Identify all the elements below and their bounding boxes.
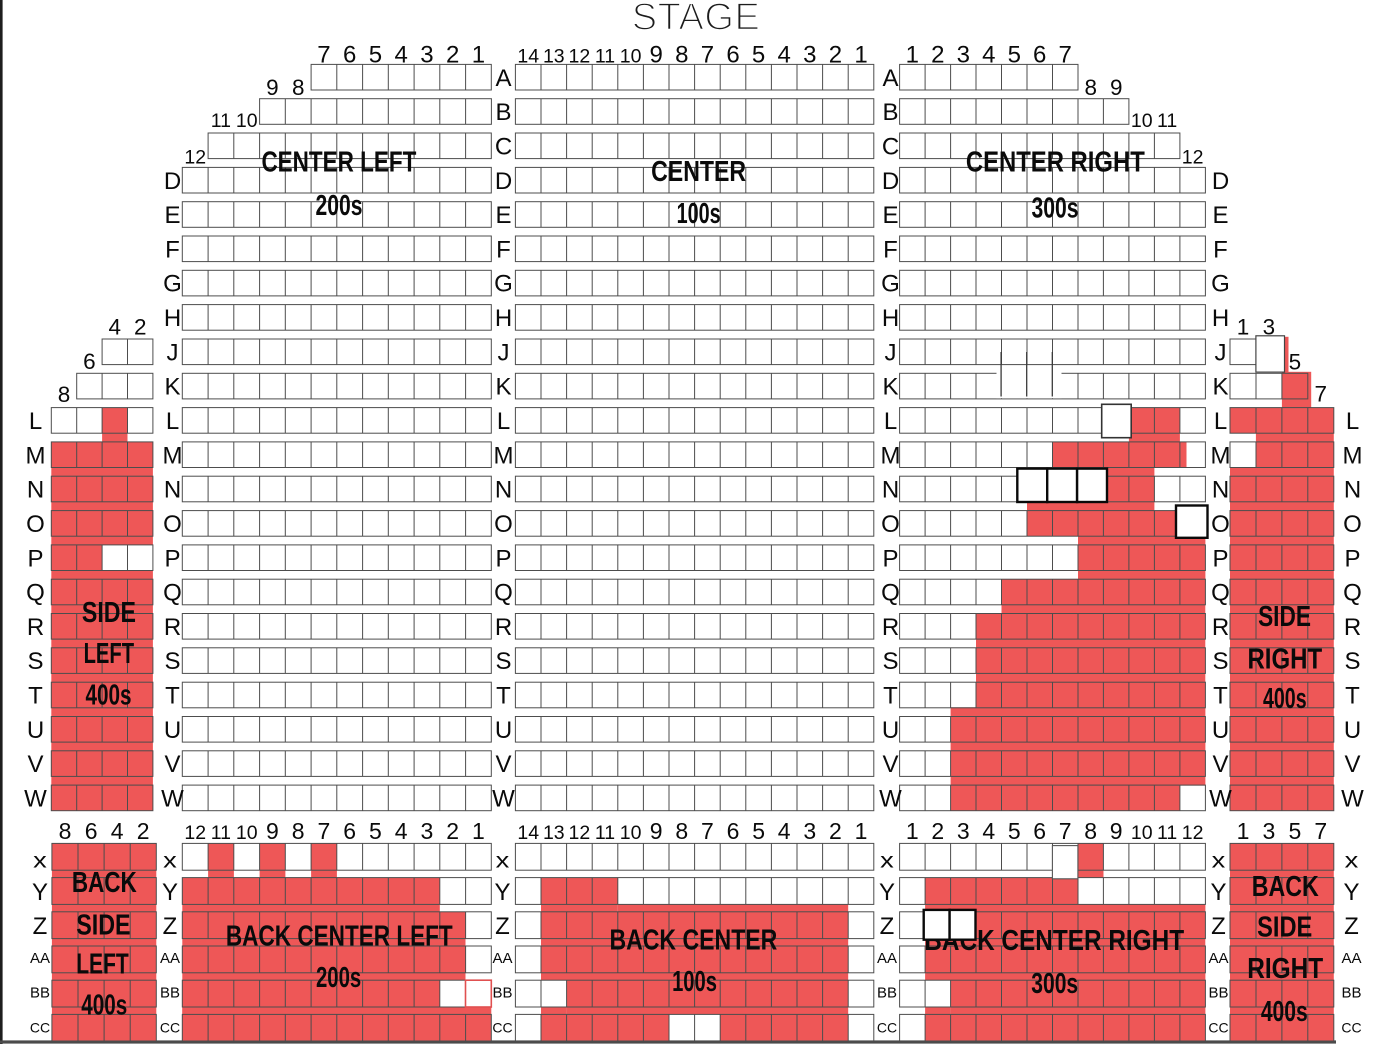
- svg-text:LEFT: LEFT: [76, 948, 129, 980]
- svg-text:CC: CC: [492, 1020, 512, 1036]
- svg-text:J: J: [1215, 339, 1227, 366]
- svg-text:CC: CC: [1208, 1020, 1228, 1036]
- svg-text:2: 2: [829, 818, 842, 844]
- svg-text:14: 14: [517, 46, 539, 68]
- svg-text:12: 12: [184, 822, 206, 844]
- svg-text:4: 4: [982, 818, 995, 844]
- svg-text:V: V: [495, 751, 511, 778]
- svg-text:RIGHT: RIGHT: [1247, 642, 1322, 675]
- svg-text:BB: BB: [30, 984, 50, 1001]
- svg-text:W: W: [161, 786, 184, 813]
- svg-text:BB: BB: [492, 984, 512, 1001]
- svg-text:L: L: [1214, 408, 1227, 435]
- svg-text:x: x: [1212, 849, 1226, 872]
- svg-text:BB: BB: [160, 984, 180, 1001]
- svg-text:x: x: [1345, 849, 1359, 872]
- svg-text:L: L: [1346, 408, 1359, 435]
- svg-text:STAGE: STAGE: [632, 0, 760, 39]
- svg-text:4: 4: [778, 42, 791, 69]
- svg-text:8: 8: [59, 818, 72, 844]
- svg-text:D: D: [882, 168, 899, 195]
- svg-text:D: D: [1212, 168, 1229, 195]
- svg-text:2: 2: [134, 315, 147, 340]
- svg-text:S: S: [27, 648, 43, 675]
- svg-text:300s: 300s: [1032, 192, 1079, 224]
- svg-text:W: W: [492, 786, 515, 813]
- svg-text:8: 8: [292, 818, 305, 844]
- svg-text:200s: 200s: [316, 962, 361, 994]
- svg-text:T: T: [1213, 683, 1228, 710]
- svg-text:SIDE: SIDE: [82, 595, 136, 628]
- svg-text:P: P: [164, 545, 180, 572]
- svg-text:1: 1: [472, 42, 485, 69]
- svg-text:M: M: [163, 442, 183, 469]
- svg-text:O: O: [163, 511, 182, 538]
- svg-text:1: 1: [854, 42, 867, 69]
- svg-text:B: B: [495, 99, 511, 126]
- svg-text:Q: Q: [1211, 580, 1230, 607]
- svg-text:Q: Q: [26, 580, 45, 607]
- svg-text:S: S: [1212, 648, 1228, 675]
- svg-text:K: K: [495, 374, 511, 401]
- svg-text:10: 10: [620, 46, 642, 68]
- svg-text:2: 2: [137, 818, 150, 844]
- svg-text:2: 2: [931, 42, 944, 69]
- svg-text:AA: AA: [877, 950, 897, 967]
- svg-text:4: 4: [982, 42, 995, 69]
- svg-text:4: 4: [109, 315, 122, 340]
- svg-text:3: 3: [803, 42, 816, 69]
- svg-text:Z: Z: [33, 913, 48, 940]
- svg-text:B: B: [882, 99, 898, 126]
- svg-text:T: T: [28, 683, 43, 710]
- svg-text:5: 5: [1289, 350, 1302, 375]
- svg-text:D: D: [495, 168, 512, 195]
- svg-text:11: 11: [1157, 110, 1177, 132]
- svg-text:E: E: [1212, 202, 1228, 229]
- svg-text:Y: Y: [32, 879, 48, 906]
- svg-text:6: 6: [343, 42, 356, 69]
- svg-text:13: 13: [543, 822, 565, 844]
- svg-text:CC: CC: [160, 1020, 180, 1036]
- svg-text:2: 2: [446, 818, 459, 844]
- svg-text:200s: 200s: [316, 190, 363, 222]
- svg-text:RIGHT: RIGHT: [1247, 952, 1324, 984]
- svg-text:V: V: [1212, 751, 1228, 778]
- svg-text:4: 4: [111, 818, 124, 844]
- svg-text:5: 5: [1289, 818, 1302, 844]
- svg-text:T: T: [496, 683, 511, 710]
- svg-text:BACK CENTER: BACK CENTER: [609, 923, 777, 956]
- svg-text:12: 12: [1182, 147, 1204, 169]
- svg-text:F: F: [883, 236, 898, 263]
- svg-text:1: 1: [1237, 818, 1250, 844]
- svg-text:5: 5: [1008, 818, 1021, 844]
- svg-text:H: H: [1212, 305, 1229, 332]
- svg-text:10: 10: [1131, 822, 1153, 844]
- svg-text:400s: 400s: [1263, 683, 1307, 715]
- svg-text:9: 9: [650, 42, 663, 69]
- svg-text:Z: Z: [1211, 913, 1226, 940]
- svg-text:P: P: [495, 545, 511, 572]
- svg-text:1: 1: [906, 818, 919, 844]
- svg-text:11: 11: [1157, 822, 1177, 844]
- svg-text:3: 3: [1263, 818, 1276, 844]
- svg-text:Y: Y: [879, 879, 895, 906]
- svg-text:A: A: [495, 65, 511, 92]
- svg-text:9: 9: [266, 818, 279, 844]
- svg-text:K: K: [164, 374, 180, 401]
- svg-text:3: 3: [803, 818, 816, 844]
- svg-text:F: F: [496, 236, 511, 263]
- svg-text:3: 3: [957, 42, 970, 69]
- svg-text:5: 5: [752, 42, 765, 69]
- svg-text:2: 2: [446, 42, 459, 69]
- svg-text:AA: AA: [160, 950, 180, 967]
- svg-text:P: P: [1344, 545, 1360, 572]
- svg-text:6: 6: [343, 818, 356, 844]
- svg-text:6: 6: [83, 349, 96, 374]
- svg-text:x: x: [33, 849, 47, 872]
- svg-text:8: 8: [58, 382, 71, 407]
- svg-text:L: L: [166, 408, 179, 435]
- svg-text:x: x: [163, 849, 177, 872]
- svg-text:SIDE: SIDE: [76, 908, 130, 941]
- svg-text:2: 2: [931, 818, 944, 844]
- svg-text:O: O: [26, 511, 45, 538]
- svg-text:K: K: [882, 374, 898, 401]
- svg-text:A: A: [882, 65, 898, 92]
- svg-text:8: 8: [292, 75, 305, 100]
- svg-text:M: M: [1343, 442, 1363, 469]
- svg-text:6: 6: [727, 818, 740, 844]
- svg-text:9: 9: [650, 818, 663, 844]
- svg-text:L: L: [29, 408, 42, 435]
- svg-text:H: H: [164, 305, 181, 332]
- svg-text:2: 2: [829, 42, 842, 69]
- svg-text:F: F: [1213, 236, 1228, 263]
- svg-text:N: N: [1212, 477, 1229, 504]
- svg-text:H: H: [882, 305, 899, 332]
- svg-text:V: V: [882, 751, 898, 778]
- svg-text:CC: CC: [1341, 1020, 1361, 1036]
- svg-text:AA: AA: [1341, 950, 1361, 967]
- svg-text:Y: Y: [494, 879, 510, 906]
- svg-text:J: J: [498, 339, 510, 366]
- svg-text:P: P: [882, 545, 898, 572]
- svg-text:5: 5: [369, 42, 382, 69]
- svg-text:L: L: [884, 408, 897, 435]
- svg-text:L: L: [497, 408, 510, 435]
- svg-text:8: 8: [1084, 75, 1097, 100]
- svg-text:10: 10: [236, 110, 258, 132]
- svg-text:U: U: [164, 717, 181, 744]
- svg-text:x: x: [496, 849, 510, 872]
- svg-text:Y: Y: [162, 879, 178, 906]
- svg-text:O: O: [494, 511, 513, 538]
- svg-text:R: R: [495, 614, 512, 641]
- svg-text:LEFT: LEFT: [84, 637, 134, 669]
- svg-text:U: U: [495, 717, 512, 744]
- svg-text:SIDE: SIDE: [1257, 910, 1312, 943]
- svg-text:Z: Z: [495, 913, 510, 940]
- svg-text:4: 4: [395, 818, 408, 844]
- svg-text:O: O: [1211, 511, 1230, 538]
- svg-text:N: N: [1344, 477, 1361, 504]
- svg-text:1: 1: [906, 42, 919, 69]
- svg-text:100s: 100s: [672, 965, 717, 998]
- svg-text:6: 6: [85, 818, 98, 844]
- svg-text:SIDE: SIDE: [1258, 599, 1311, 632]
- svg-text:9: 9: [1110, 75, 1123, 100]
- svg-text:G: G: [881, 271, 900, 298]
- svg-text:12: 12: [569, 46, 591, 68]
- svg-text:7: 7: [701, 42, 714, 69]
- svg-text:U: U: [27, 717, 44, 744]
- svg-text:11: 11: [595, 46, 615, 68]
- svg-text:10: 10: [236, 822, 258, 844]
- svg-text:400s: 400s: [85, 679, 131, 711]
- svg-text:1: 1: [855, 818, 868, 844]
- svg-text:7: 7: [1314, 818, 1327, 844]
- svg-text:7: 7: [318, 818, 331, 844]
- svg-text:F: F: [165, 236, 180, 263]
- svg-text:R: R: [164, 614, 181, 641]
- svg-text:Y: Y: [1210, 879, 1226, 906]
- svg-text:P: P: [27, 545, 43, 572]
- svg-text:V: V: [1344, 751, 1360, 778]
- svg-text:3: 3: [957, 818, 970, 844]
- svg-text:BACK CENTER LEFT: BACK CENTER LEFT: [226, 919, 453, 952]
- svg-text:CENTER RIGHT: CENTER RIGHT: [966, 145, 1145, 178]
- svg-text:N: N: [495, 477, 512, 504]
- svg-text:S: S: [495, 648, 511, 675]
- svg-text:Z: Z: [1344, 913, 1359, 940]
- svg-text:U: U: [1212, 717, 1229, 744]
- svg-text:T: T: [1345, 683, 1360, 710]
- svg-text:V: V: [27, 751, 43, 778]
- svg-text:9: 9: [266, 75, 279, 100]
- svg-text:CC: CC: [30, 1020, 50, 1036]
- svg-text:8: 8: [675, 42, 688, 69]
- svg-text:G: G: [494, 271, 513, 298]
- svg-text:R: R: [27, 614, 44, 641]
- svg-text:W: W: [1209, 786, 1232, 813]
- svg-text:8: 8: [1084, 818, 1097, 844]
- svg-text:3: 3: [420, 42, 433, 69]
- svg-text:Q: Q: [881, 580, 900, 607]
- svg-text:5: 5: [752, 818, 765, 844]
- svg-text:11: 11: [211, 110, 231, 132]
- svg-text:10: 10: [620, 822, 642, 844]
- svg-text:AA: AA: [1208, 950, 1228, 967]
- svg-text:12: 12: [1182, 822, 1204, 844]
- svg-text:BACK: BACK: [1252, 869, 1319, 902]
- svg-text:BACK: BACK: [72, 867, 137, 898]
- svg-text:U: U: [1344, 717, 1361, 744]
- svg-text:Z: Z: [880, 913, 895, 940]
- svg-text:10: 10: [1131, 110, 1153, 132]
- svg-text:G: G: [1211, 271, 1230, 298]
- svg-text:6: 6: [726, 42, 739, 69]
- svg-text:4: 4: [395, 42, 408, 69]
- svg-text:S: S: [882, 648, 898, 675]
- svg-text:7: 7: [317, 42, 330, 69]
- svg-text:400s: 400s: [81, 989, 127, 1021]
- svg-text:13: 13: [543, 46, 565, 68]
- svg-text:BB: BB: [1208, 984, 1228, 1001]
- svg-text:100s: 100s: [677, 199, 721, 231]
- svg-text:T: T: [165, 683, 180, 710]
- svg-text:N: N: [164, 477, 181, 504]
- svg-text:BB: BB: [877, 984, 897, 1001]
- svg-text:CENTER LEFT: CENTER LEFT: [261, 147, 416, 178]
- svg-text:W: W: [24, 786, 47, 813]
- svg-text:Q: Q: [494, 580, 513, 607]
- svg-text:4: 4: [778, 818, 791, 844]
- svg-text:R: R: [1344, 614, 1361, 641]
- svg-text:9: 9: [1110, 818, 1123, 844]
- svg-text:N: N: [882, 477, 899, 504]
- svg-text:Q: Q: [163, 580, 182, 607]
- svg-text:C: C: [495, 133, 512, 160]
- svg-text:AA: AA: [492, 950, 512, 967]
- svg-text:Y: Y: [1343, 879, 1359, 906]
- svg-text:E: E: [882, 202, 898, 229]
- svg-text:V: V: [164, 751, 180, 778]
- svg-text:6: 6: [1033, 42, 1046, 69]
- svg-text:O: O: [881, 511, 900, 538]
- svg-text:C: C: [882, 133, 899, 160]
- svg-text:1: 1: [1237, 315, 1250, 340]
- svg-text:3: 3: [421, 818, 434, 844]
- svg-text:R: R: [882, 614, 899, 641]
- svg-text:5: 5: [1008, 42, 1021, 69]
- svg-text:S: S: [1344, 648, 1360, 675]
- svg-text:W: W: [879, 786, 902, 813]
- svg-text:M: M: [494, 442, 514, 469]
- svg-text:K: K: [1212, 374, 1228, 401]
- svg-text:W: W: [1341, 786, 1364, 813]
- svg-text:1: 1: [472, 818, 485, 844]
- svg-text:11: 11: [595, 822, 615, 844]
- svg-text:O: O: [1343, 511, 1362, 538]
- svg-text:D: D: [164, 168, 181, 195]
- svg-text:Z: Z: [163, 913, 178, 940]
- svg-text:400s: 400s: [1261, 996, 1308, 1028]
- svg-text:S: S: [164, 648, 180, 675]
- svg-text:M: M: [26, 442, 46, 469]
- svg-text:Q: Q: [1343, 580, 1362, 607]
- svg-text:6: 6: [1033, 818, 1046, 844]
- svg-text:5: 5: [369, 818, 382, 844]
- svg-text:E: E: [495, 202, 511, 229]
- svg-text:CC: CC: [877, 1020, 897, 1036]
- svg-text:R: R: [1212, 614, 1229, 641]
- svg-text:x: x: [880, 849, 894, 872]
- svg-text:7: 7: [1059, 818, 1072, 844]
- svg-text:J: J: [885, 339, 897, 366]
- svg-text:M: M: [881, 442, 901, 469]
- svg-text:N: N: [27, 477, 44, 504]
- svg-text:H: H: [495, 305, 512, 332]
- svg-text:T: T: [883, 683, 898, 710]
- svg-text:7: 7: [1315, 382, 1328, 407]
- svg-text:E: E: [164, 202, 180, 229]
- svg-text:CENTER: CENTER: [651, 155, 746, 188]
- svg-text:11: 11: [211, 822, 231, 844]
- svg-text:G: G: [163, 271, 182, 298]
- svg-text:12: 12: [184, 147, 206, 169]
- svg-text:8: 8: [675, 818, 688, 844]
- svg-text:M: M: [1211, 442, 1231, 469]
- svg-text:14: 14: [517, 822, 539, 844]
- svg-text:12: 12: [569, 822, 591, 844]
- svg-text:AA: AA: [30, 950, 50, 967]
- svg-text:300s: 300s: [1031, 968, 1078, 1000]
- svg-text:J: J: [167, 339, 179, 366]
- svg-text:BB: BB: [1341, 984, 1361, 1001]
- svg-text:7: 7: [1059, 42, 1072, 69]
- svg-text:7: 7: [701, 818, 714, 844]
- svg-text:U: U: [882, 717, 899, 744]
- svg-text:P: P: [1212, 545, 1228, 572]
